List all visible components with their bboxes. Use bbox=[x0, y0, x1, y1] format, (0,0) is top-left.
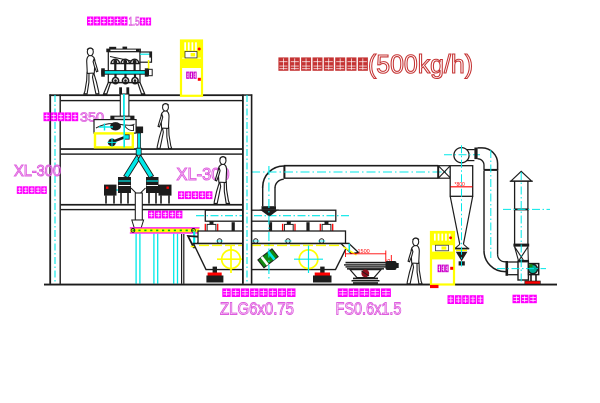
svg-text:(500kg/h): (500kg/h) bbox=[368, 49, 473, 79]
svg-text:ZLG6x0.75: ZLG6x0.75 bbox=[220, 299, 294, 319]
svg-text:*800: *800 bbox=[455, 182, 466, 188]
svg-text:1.5: 1.5 bbox=[129, 15, 140, 29]
svg-text:1500: 1500 bbox=[358, 249, 370, 255]
svg-text:XL-300: XL-300 bbox=[14, 163, 61, 180]
svg-text:FS0.6x1.5: FS0.6x1.5 bbox=[336, 299, 402, 319]
